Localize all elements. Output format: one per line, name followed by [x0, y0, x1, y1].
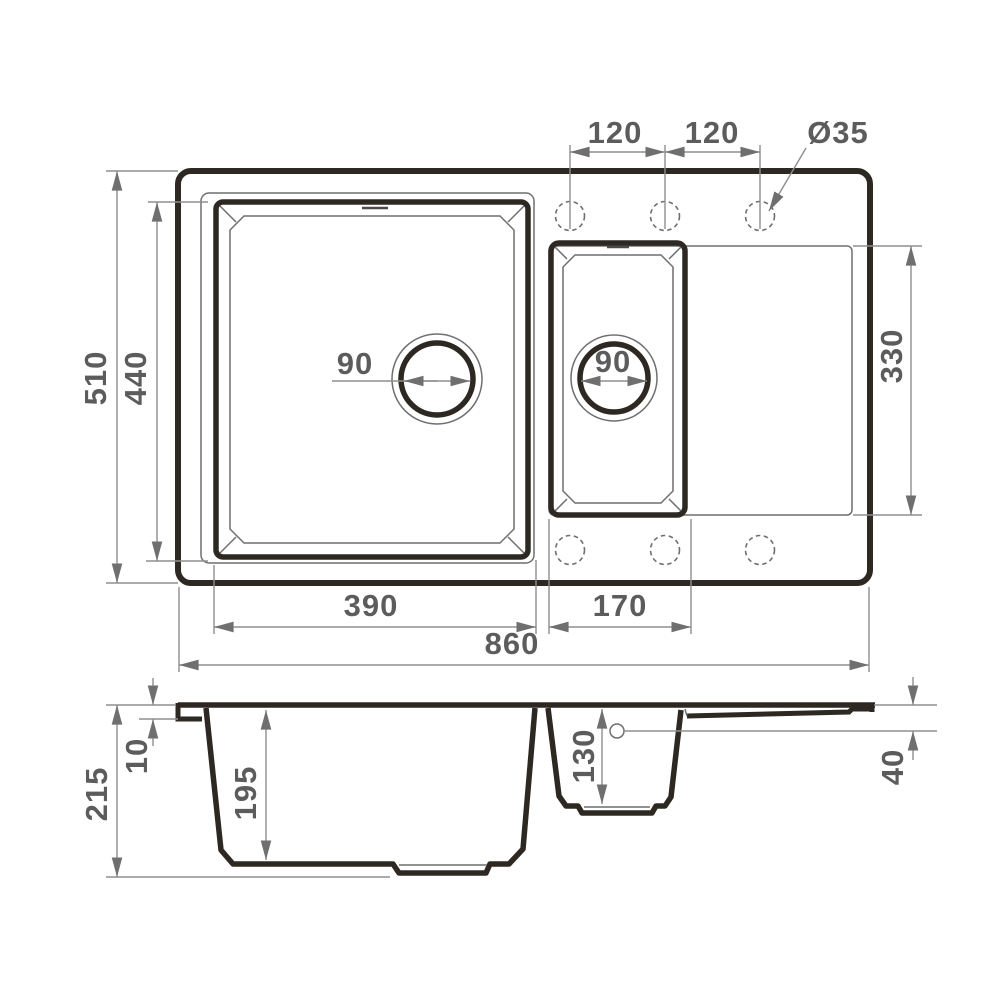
- half-bowl-depth-dim: 130: [566, 709, 602, 804]
- hole-diameter-leader: [769, 148, 806, 211]
- dim-drainer-length-label: 330: [874, 329, 909, 384]
- main-drain: 90: [332, 334, 482, 424]
- dim-main-drain-label: 90: [337, 346, 373, 381]
- tap-hole-icon: [651, 536, 680, 565]
- bottom-dims: 390 170 860: [179, 519, 869, 672]
- top-view: 90 90 120 120 Ø35 510: [78, 115, 922, 672]
- tap-hole-icon: [746, 536, 775, 565]
- right-dim: 330: [853, 246, 922, 515]
- main-bowl-depth-dim: 195: [228, 710, 266, 860]
- dim-overflow-offset-label: 40: [875, 749, 910, 785]
- dim-main-bowl-width-label: 390: [344, 588, 399, 623]
- section-view: 215 10 195 130 40: [79, 677, 937, 877]
- main-drain-hole: [401, 343, 473, 415]
- dim-hole-diameter-label: Ø35: [807, 115, 869, 150]
- dim-overall-width-label: 860: [485, 626, 540, 661]
- dim-main-bowl-length-label: 440: [118, 351, 153, 406]
- tap-hole-icon: [556, 536, 585, 565]
- half-drain: 90: [571, 335, 657, 421]
- section-drainboard-step: [685, 709, 687, 716]
- dim-half-bowl-depth-label: 130: [566, 729, 601, 784]
- dim-overall-depth-label: 510: [78, 351, 113, 406]
- dim-overall-height-label: 215: [79, 767, 114, 822]
- left-dims: 510 440: [78, 171, 208, 583]
- main-drain-outer: [392, 334, 482, 424]
- dim-main-bowl-depth-label: 195: [228, 766, 263, 821]
- technical-drawing-canvas: 90 90 120 120 Ø35 510: [0, 0, 1000, 1000]
- sink-outline: [178, 171, 870, 583]
- rim-thickness-dim: 10: [119, 678, 178, 774]
- dim-half-drain-label: 90: [595, 344, 631, 379]
- section-drainboard-surface: [687, 709, 872, 716]
- dim-hole-spacing-left-label: 120: [588, 115, 643, 150]
- dim-half-bowl-width-label: 170: [593, 588, 648, 623]
- dim-hole-spacing-right-label: 120: [685, 115, 740, 150]
- sink-drawing-page: 90 90 120 120 Ø35 510: [0, 0, 1000, 1000]
- dim-rim-thickness-label: 10: [119, 738, 154, 774]
- half-bowl-corner-bevels: [555, 247, 681, 511]
- overflow-hole-icon: [610, 724, 624, 738]
